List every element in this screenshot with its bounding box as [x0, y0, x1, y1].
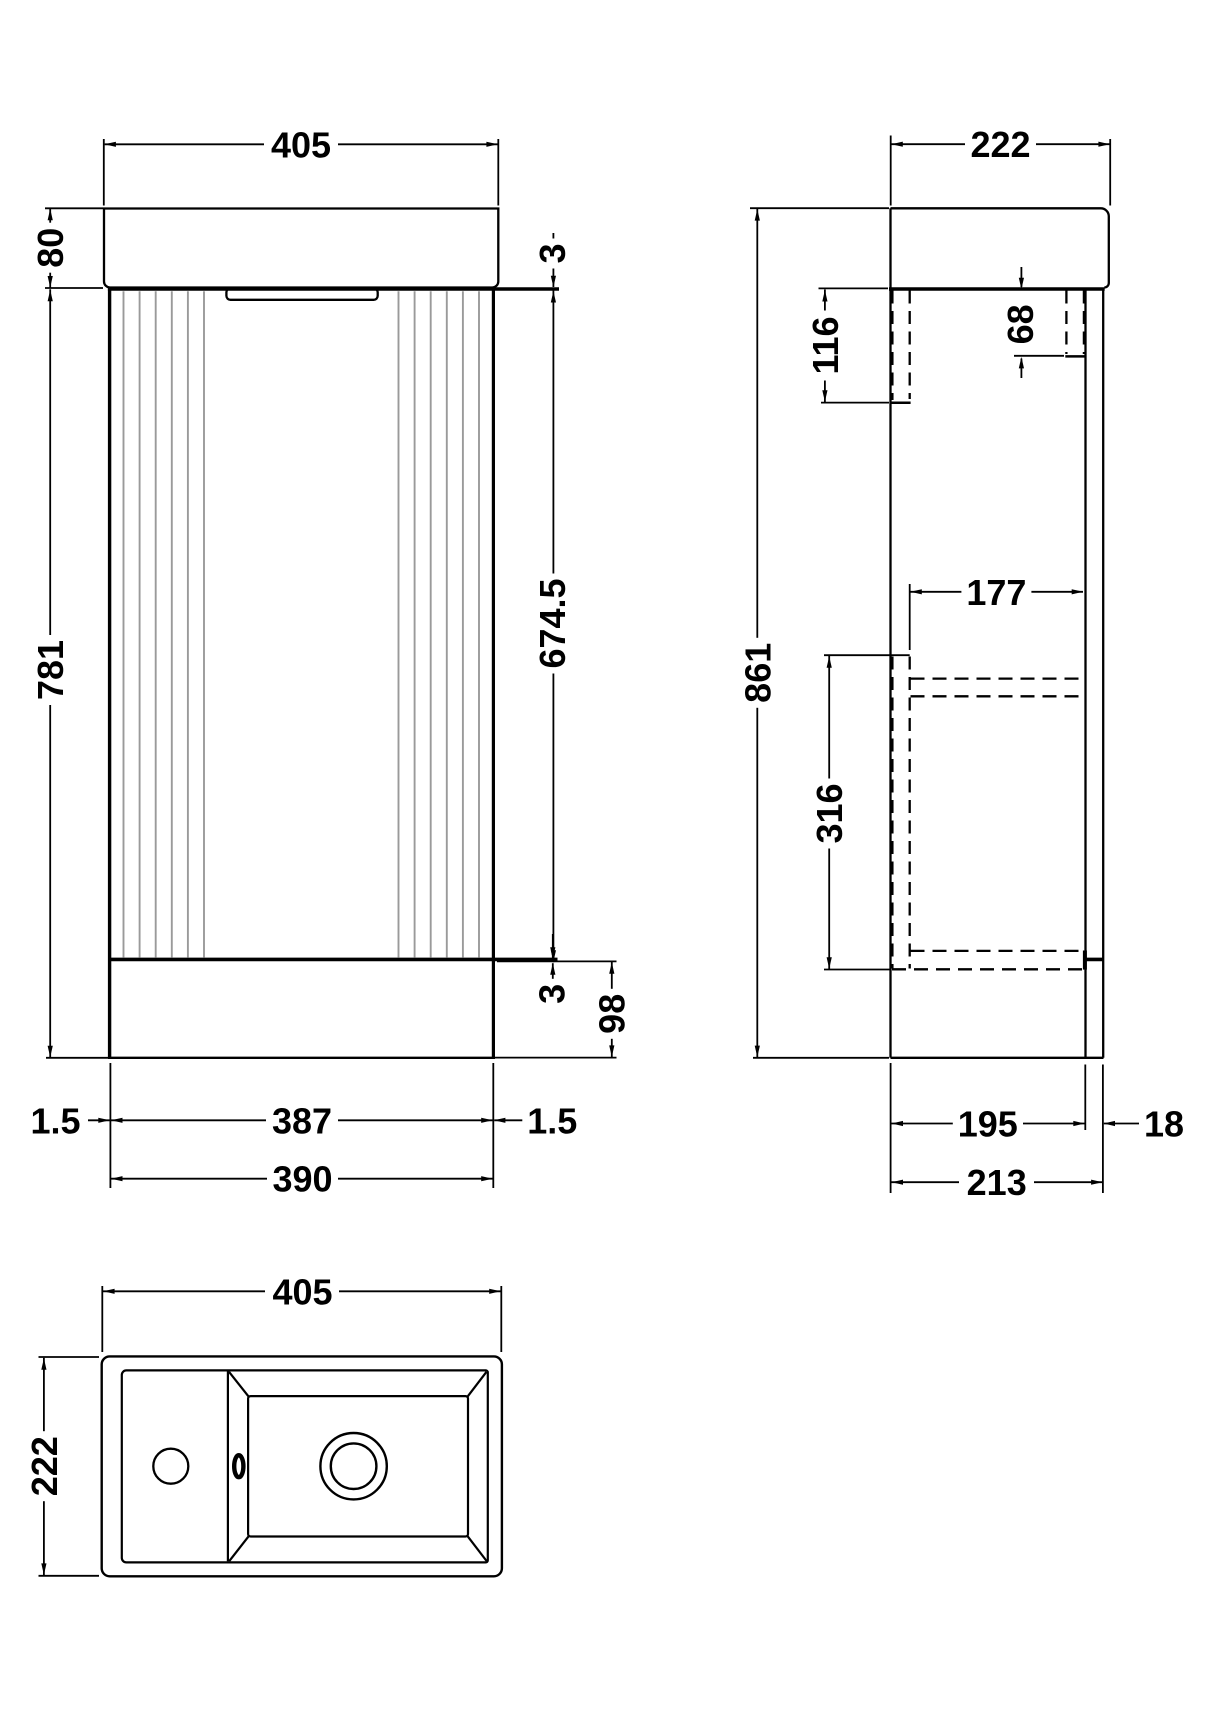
svg-text:316: 316 [809, 783, 850, 843]
svg-text:405: 405 [271, 124, 331, 165]
svg-text:781: 781 [30, 640, 71, 700]
svg-text:3: 3 [531, 984, 572, 1004]
svg-text:674.5: 674.5 [532, 578, 573, 668]
svg-text:405: 405 [272, 1271, 332, 1312]
svg-text:387: 387 [272, 1100, 332, 1141]
svg-text:861: 861 [737, 643, 778, 703]
svg-text:80: 80 [30, 228, 71, 268]
svg-text:1.5: 1.5 [527, 1100, 577, 1141]
svg-text:1.5: 1.5 [30, 1100, 80, 1141]
svg-text:68: 68 [1000, 304, 1041, 344]
svg-text:177: 177 [966, 572, 1026, 613]
svg-text:116: 116 [805, 316, 846, 374]
svg-text:213: 213 [967, 1162, 1027, 1203]
svg-text:222: 222 [24, 1436, 65, 1496]
svg-text:18: 18 [1144, 1104, 1184, 1145]
svg-text:3: 3 [532, 243, 573, 263]
svg-text:390: 390 [272, 1159, 332, 1200]
svg-text:195: 195 [958, 1104, 1018, 1145]
svg-text:222: 222 [970, 124, 1030, 165]
svg-text:98: 98 [592, 994, 633, 1034]
